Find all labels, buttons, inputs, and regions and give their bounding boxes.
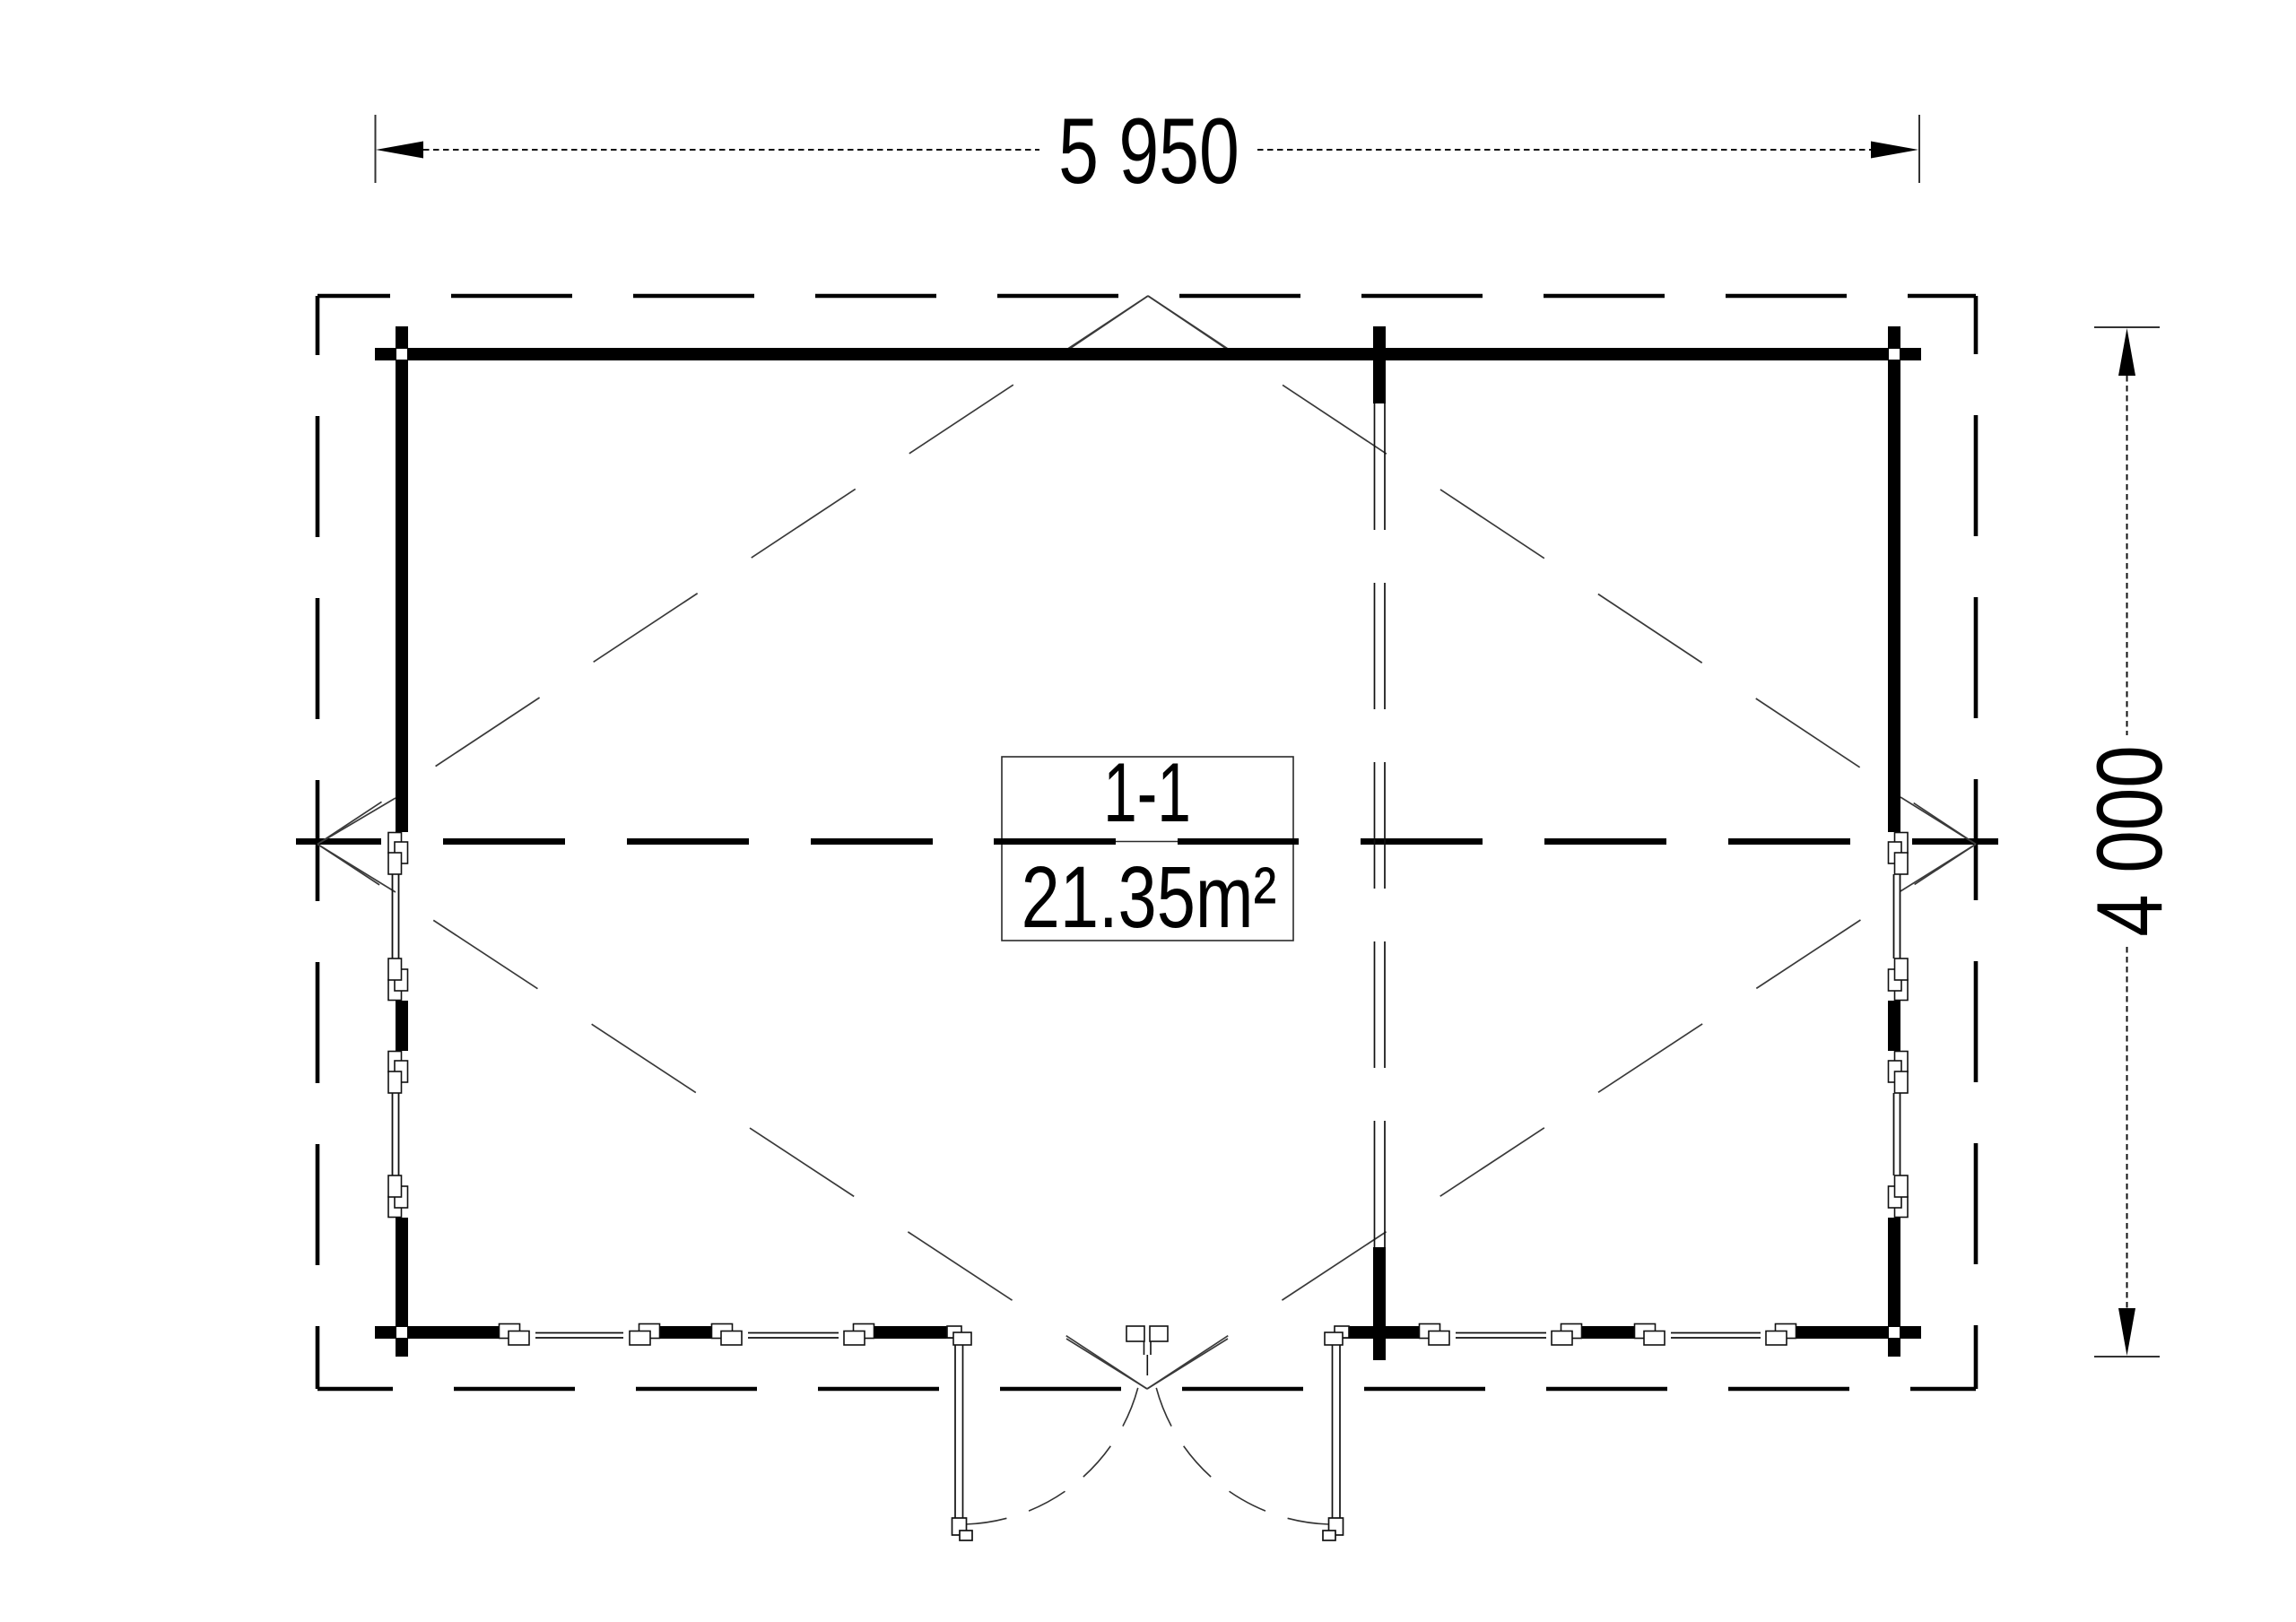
svg-text:4 000: 4 000	[2078, 745, 2182, 936]
svg-text:5 950: 5 950	[1058, 99, 1239, 203]
svg-text:21.35m²: 21.35m²	[1022, 848, 1277, 946]
svg-text:1-1: 1-1	[1103, 746, 1191, 839]
